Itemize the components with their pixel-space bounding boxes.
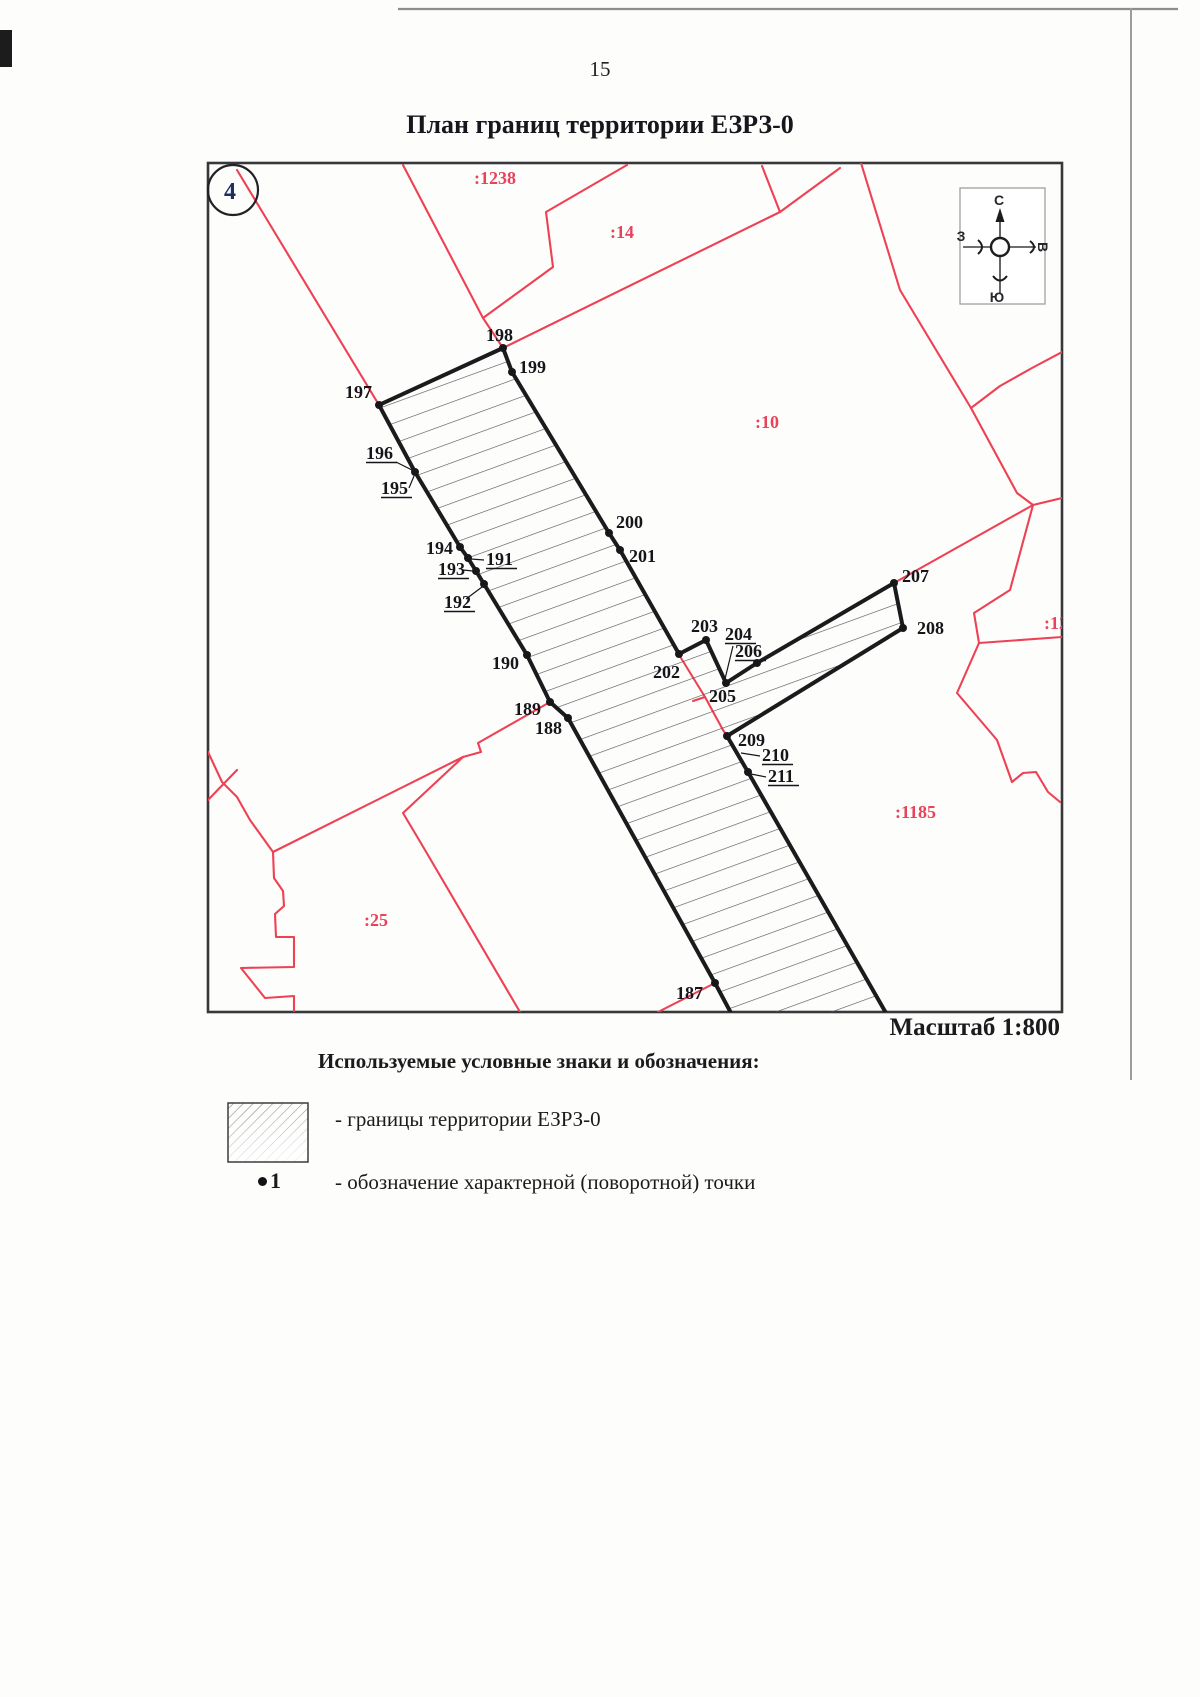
- point-dot-188: [564, 714, 572, 722]
- parcel-label-1238: :1238: [474, 168, 516, 188]
- document-page: 15 План границ территории ЕЗРЗ-0: [0, 0, 1200, 1697]
- point-207: 207: [890, 566, 929, 587]
- point-label-200: 200: [616, 512, 643, 532]
- point-label-201: 201: [629, 546, 656, 566]
- legend-item-point-text: - обозначение характерной (поворотной) т…: [335, 1170, 755, 1195]
- point-dot-189: [546, 698, 554, 706]
- point-dot-202: [675, 650, 683, 658]
- point-label-198: 198: [486, 325, 513, 345]
- legend-point-sample: 1: [258, 1168, 281, 1194]
- point-192: 192: [444, 580, 488, 612]
- point-label-209: 209: [738, 730, 765, 750]
- point-dot-209: [723, 732, 731, 740]
- point-195: 195: [381, 468, 419, 498]
- point-dot-190: [523, 651, 531, 659]
- plan-drawing: :1238:14:10:12:1185:25 18718818919019119…: [0, 0, 1200, 1697]
- point-dot-203: [702, 636, 710, 644]
- map-content: :1238:14:10:12:1185:25: [208, 163, 1068, 1013]
- point-label-207: 207: [902, 566, 929, 586]
- map-scale-label: Масштаб 1:800: [208, 1014, 1060, 1042]
- point-label-194: 194: [426, 538, 453, 558]
- point-label-197: 197: [345, 382, 372, 402]
- point-dot-200: [605, 529, 613, 537]
- territory-ezrz0: [379, 348, 903, 1013]
- parcel-label-12: :12: [1044, 613, 1068, 633]
- legend-item-boundary-text: - границы территории ЕЗРЗ-0: [335, 1107, 601, 1132]
- point-189: 189: [514, 698, 554, 719]
- legend-point-sample-number: 1: [270, 1168, 281, 1194]
- point-label-205: 205: [709, 686, 736, 706]
- point-label-187: 187: [676, 983, 703, 1003]
- point-190: 190: [492, 651, 531, 673]
- point-dot-187: [711, 979, 719, 987]
- point-dot-197: [375, 401, 383, 409]
- compass-rose: С З В Ю: [957, 188, 1051, 305]
- point-dot-191: [464, 554, 472, 562]
- legend-symbols: [228, 1103, 308, 1162]
- point-dot-193: [472, 567, 480, 575]
- sheet-badge: 4: [208, 165, 258, 215]
- point-label-188: 188: [535, 718, 562, 738]
- parcel-label-14: :14: [610, 222, 634, 242]
- point-dot-207: [890, 579, 898, 587]
- point-dot-192: [480, 580, 488, 588]
- legend-heading: Используемые условные знаки и обозначени…: [318, 1049, 760, 1074]
- point-label-199: 199: [519, 357, 546, 377]
- point-label-192: 192: [444, 592, 471, 612]
- point-label-208: 208: [917, 618, 944, 638]
- point-label-189: 189: [514, 699, 541, 719]
- point-label-202: 202: [653, 662, 680, 682]
- point-label-195: 195: [381, 478, 408, 498]
- sheet-badge-number: 4: [224, 179, 236, 205]
- point-label-211: 211: [768, 766, 794, 786]
- turn-point-icon: [258, 1177, 267, 1186]
- point-label-206: 206: [735, 641, 762, 661]
- parcel-label-10: :10: [755, 412, 779, 432]
- point-200: 200: [605, 512, 643, 537]
- point-dot-211: [744, 768, 752, 776]
- parcel-label-1185: :1185: [895, 802, 936, 822]
- point-199: 199: [508, 357, 546, 377]
- compass-south-label: Ю: [990, 289, 1004, 305]
- point-dot-194: [456, 543, 464, 551]
- compass-north-label: С: [994, 192, 1004, 208]
- point-dot-198: [499, 344, 507, 352]
- parcel-label-25: :25: [364, 910, 388, 930]
- point-187: 187: [676, 979, 719, 1003]
- legend-hatch-fade: [228, 1103, 308, 1162]
- point-label-191: 191: [486, 549, 513, 569]
- point-label-210: 210: [762, 745, 789, 765]
- point-203: 203: [691, 616, 718, 644]
- point-dot-199: [508, 368, 516, 376]
- point-label-193: 193: [438, 559, 465, 579]
- point-197: 197: [345, 382, 383, 409]
- scan-artifact-corner-mark: [0, 30, 12, 67]
- point-label-190: 190: [492, 653, 519, 673]
- compass-west-label: З: [957, 228, 966, 244]
- point-label-196: 196: [366, 443, 393, 463]
- point-label-203: 203: [691, 616, 718, 636]
- point-dot-195: [411, 468, 419, 476]
- point-dot-208: [899, 624, 907, 632]
- point-198: 198: [486, 325, 513, 352]
- point-dot-201: [616, 546, 624, 554]
- compass-east-label: В: [1035, 242, 1051, 252]
- point-208: 208: [899, 618, 944, 638]
